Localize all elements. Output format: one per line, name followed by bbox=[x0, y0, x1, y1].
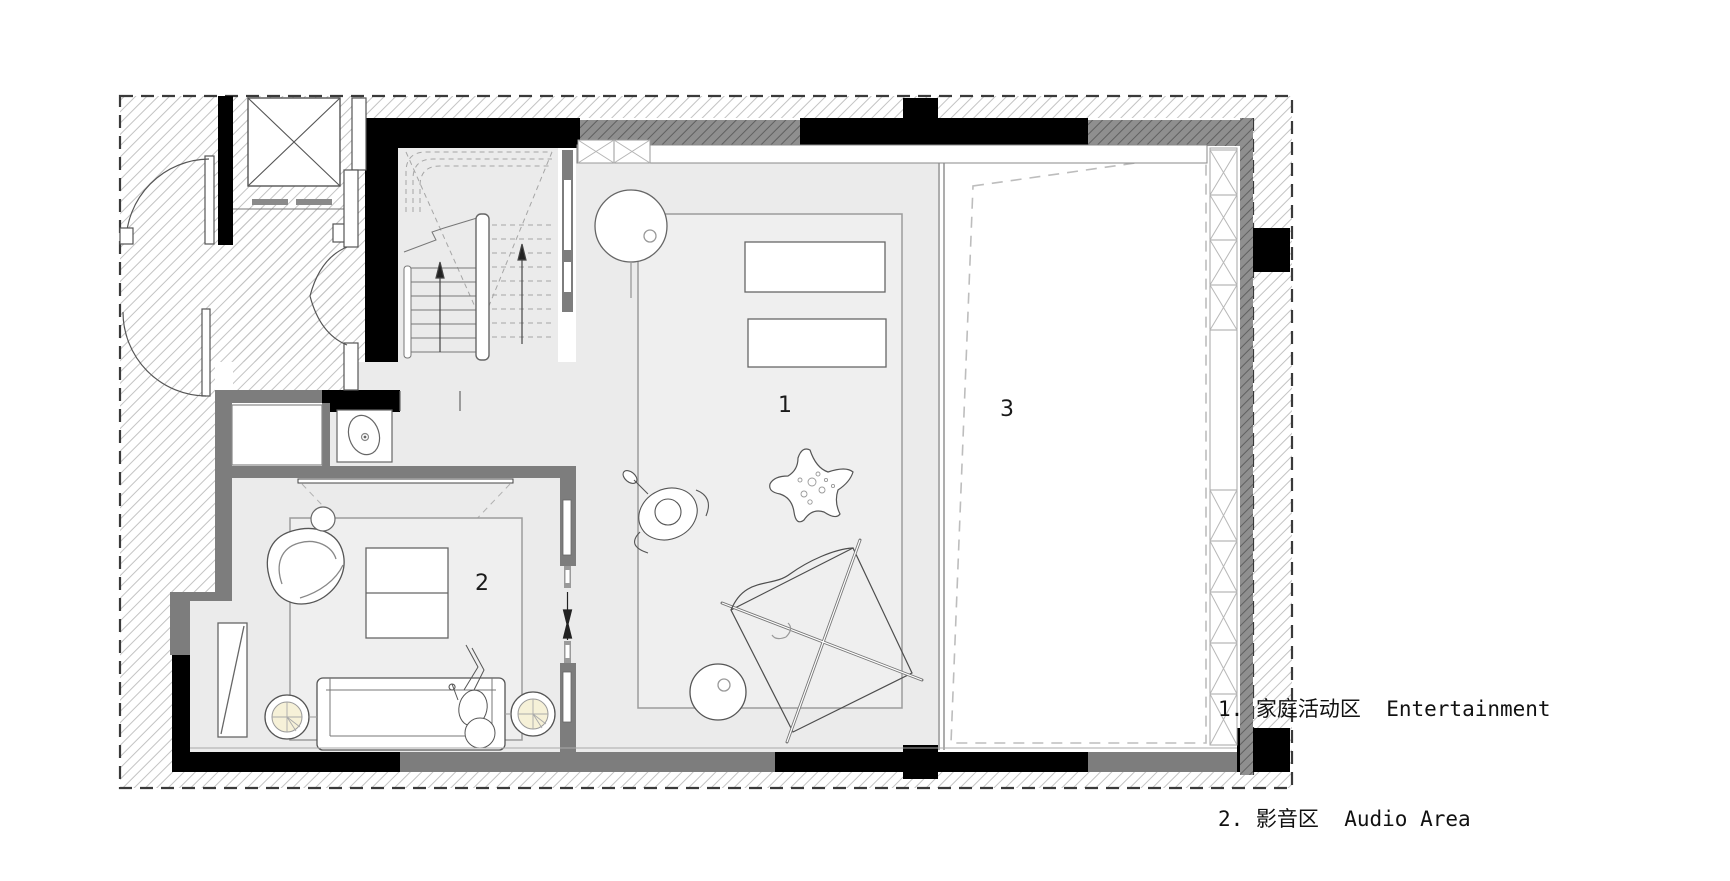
side-ball bbox=[311, 507, 335, 531]
stair-center-rail bbox=[476, 214, 489, 360]
room-divider bbox=[939, 148, 944, 750]
stair-wall-slot bbox=[564, 180, 571, 250]
speaker-unit bbox=[337, 410, 392, 462]
ottoman bbox=[366, 548, 448, 638]
room2-number: 2 bbox=[475, 571, 489, 596]
stair-side-rail bbox=[404, 266, 411, 358]
room1-number: 1 bbox=[778, 393, 792, 418]
elevator-door-left bbox=[252, 199, 288, 205]
legend: 1. 家庭活动区 Entertainment 2. 影音区 Audio Area… bbox=[1218, 618, 1551, 881]
cabinet-x-boxes bbox=[578, 140, 650, 163]
legend-item-1: 1. 家庭活动区 Entertainment bbox=[1218, 691, 1551, 728]
room3-floor bbox=[944, 148, 1240, 750]
kids-table-1 bbox=[745, 242, 885, 292]
top-cabinet bbox=[577, 145, 1207, 163]
room3-number: 3 bbox=[1000, 397, 1014, 422]
elevator-door-right bbox=[296, 199, 332, 205]
niche-cabinet bbox=[232, 405, 322, 465]
shaft-wall bbox=[352, 98, 366, 170]
stair-wall-slot2 bbox=[564, 262, 571, 292]
cased-opening bbox=[400, 390, 460, 412]
kids-table-2 bbox=[748, 319, 886, 367]
console-cabinet bbox=[218, 623, 247, 737]
pouf bbox=[690, 664, 746, 720]
legend-item-2: 2. 影音区 Audio Area bbox=[1218, 801, 1551, 838]
floor-plan-canvas: 1 bbox=[0, 0, 1730, 881]
